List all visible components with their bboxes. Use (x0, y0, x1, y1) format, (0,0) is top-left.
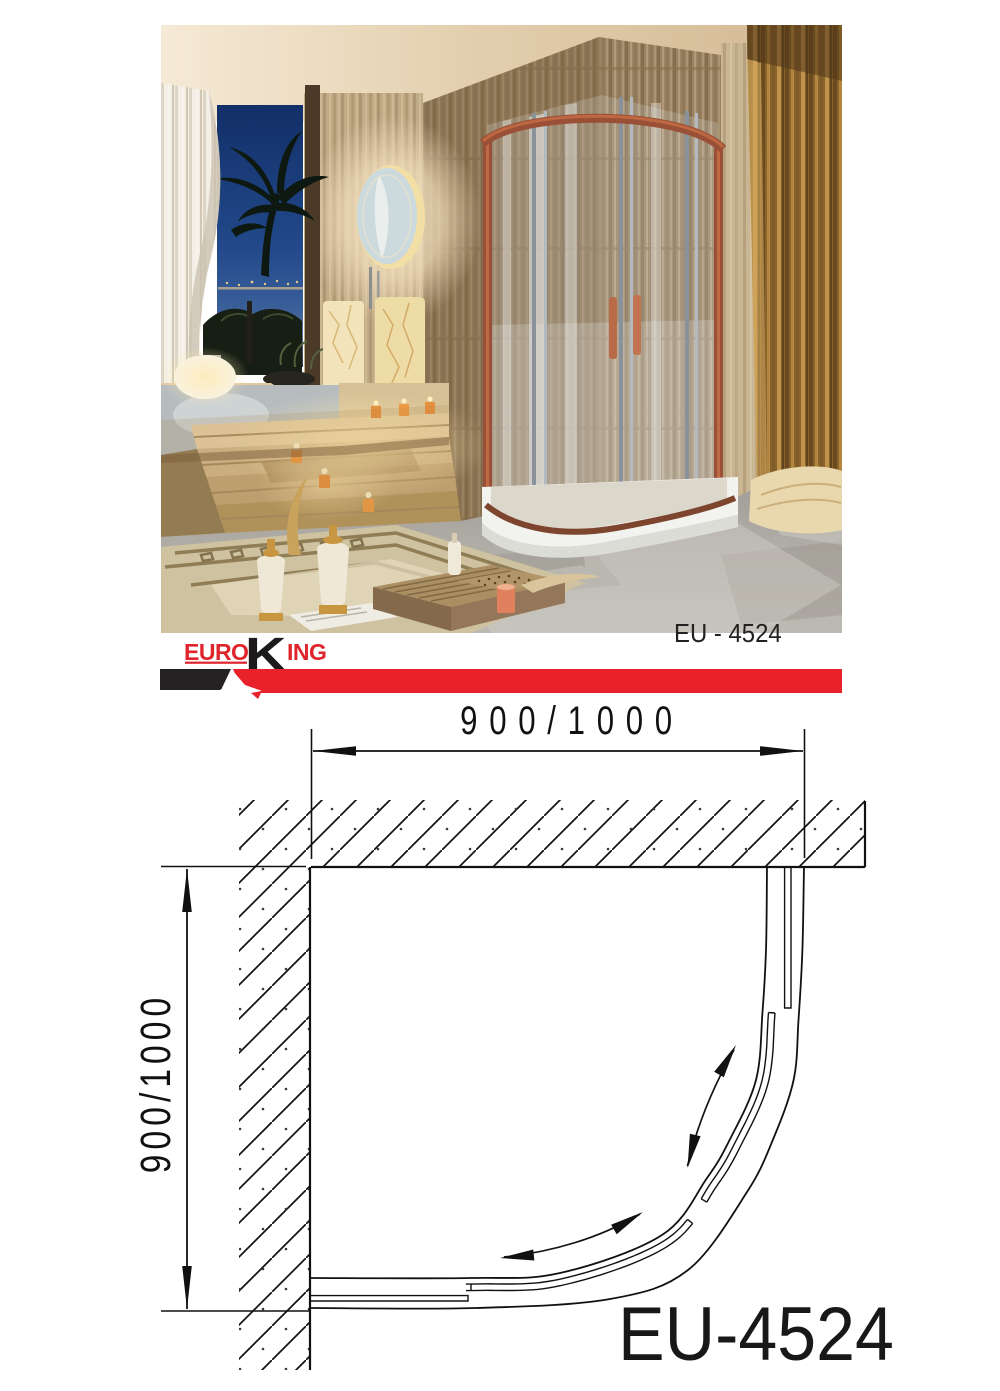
svg-text:900/1000: 900/1000 (132, 993, 180, 1173)
svg-text:900/1000: 900/1000 (460, 698, 684, 743)
svg-text:ING: ING (287, 639, 326, 665)
svg-text:EURO: EURO (184, 639, 248, 665)
svg-text:EU-4524: EU-4524 (618, 1292, 894, 1376)
